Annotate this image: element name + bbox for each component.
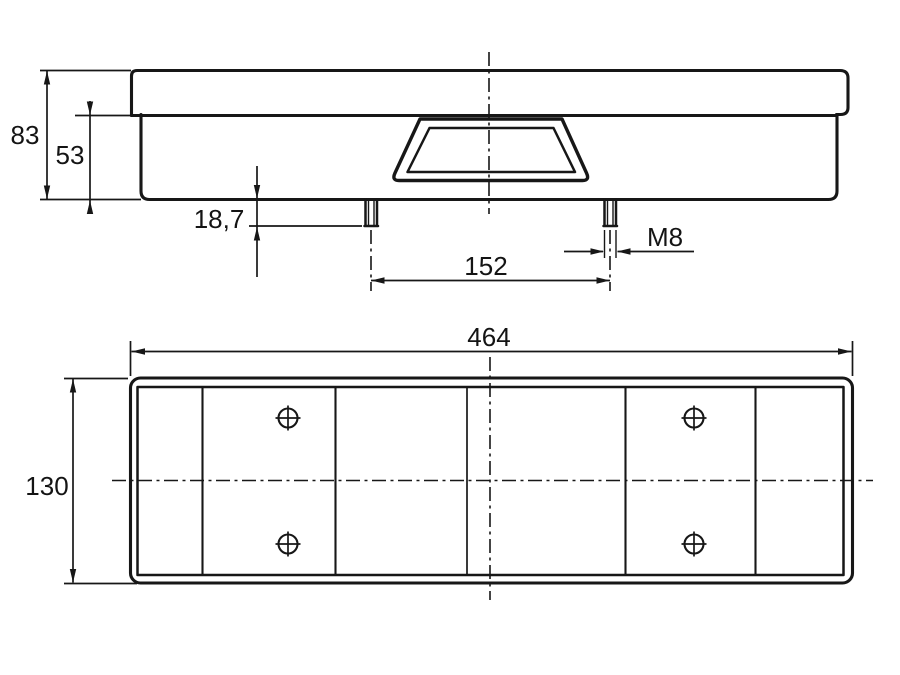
- dimension-total-height: 83: [11, 71, 141, 200]
- dim-464-label: 464: [467, 322, 510, 352]
- dim-m8-label: M8: [647, 222, 683, 252]
- dimension-housing-height: 53: [56, 101, 132, 214]
- screw-cross: [682, 532, 707, 557]
- arrow-down: [87, 102, 93, 116]
- arrow-left: [132, 348, 146, 354]
- dim-83-label: 83: [11, 120, 40, 150]
- screw-mark-top-right: [682, 406, 707, 431]
- arrow-down: [44, 186, 50, 200]
- connector-cover-inner: [408, 128, 576, 172]
- dim-130-label: 130: [25, 471, 68, 501]
- arrow-left: [371, 277, 385, 283]
- lamp-dimension-drawing: 83 53 18,7 152: [0, 0, 900, 675]
- dim-18-7-label: 18,7: [194, 204, 245, 234]
- dimension-stud-length: 18,7: [194, 166, 362, 277]
- stud-right-outline: [604, 200, 618, 227]
- screw-mark-bottom-left: [276, 532, 301, 557]
- mounting-stud-left: [365, 200, 379, 227]
- arrow-down: [254, 185, 260, 199]
- arrow-up: [87, 201, 93, 215]
- dim-152-label: 152: [464, 251, 507, 281]
- arrow-up: [70, 379, 76, 393]
- technical-drawing-canvas: 83 53 18,7 152: [0, 0, 900, 675]
- side-profile-view: 83 53 18,7 152: [11, 52, 848, 291]
- screw-cross: [276, 406, 301, 431]
- screw-mark-bottom-right: [682, 532, 707, 557]
- stud-left-thread-lines: [369, 201, 375, 225]
- arrow-up: [44, 71, 50, 85]
- arrow-up: [254, 227, 260, 241]
- screw-mark-top-left: [276, 406, 301, 431]
- stud-right-thread-lines: [608, 201, 614, 225]
- screw-cross: [276, 532, 301, 557]
- arrow-right: [838, 348, 852, 354]
- rear-face-view: 464 130: [25, 322, 873, 600]
- stud-left-outline: [365, 200, 379, 227]
- arrow-right: [591, 248, 605, 254]
- screw-cross: [682, 406, 707, 431]
- dimension-thread: M8: [564, 222, 694, 255]
- arrow-right: [597, 277, 611, 283]
- arrow-left: [617, 248, 631, 254]
- arrow-down: [70, 569, 76, 583]
- dimension-stud-spacing: 152: [371, 251, 610, 284]
- dimension-width: 464: [131, 322, 853, 376]
- dim-53-label: 53: [56, 140, 85, 170]
